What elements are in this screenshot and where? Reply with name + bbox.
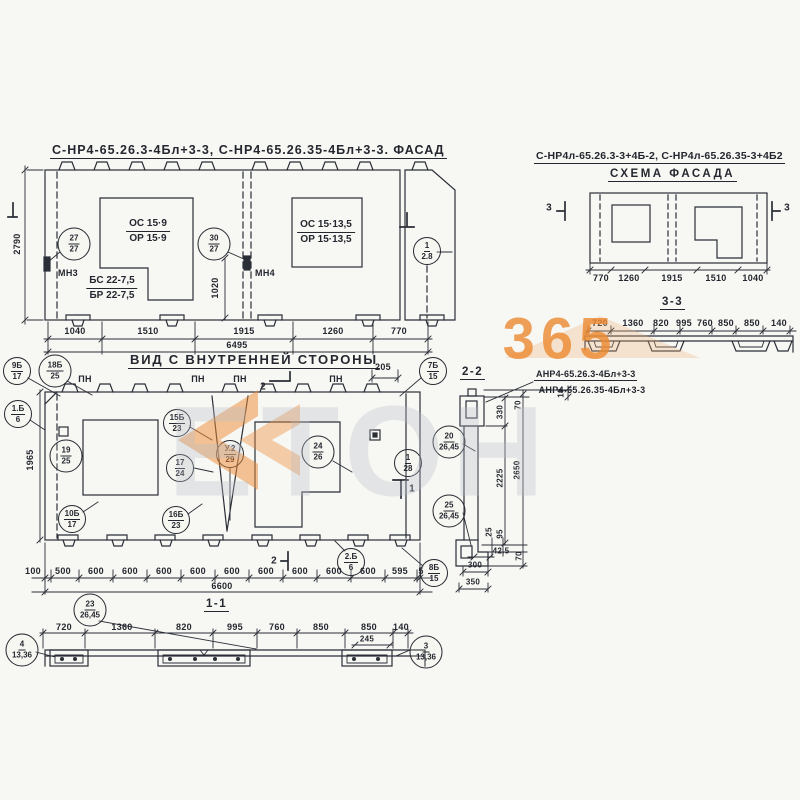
section-mark-label: 2	[260, 382, 266, 393]
dim-label: 600	[224, 566, 240, 576]
dim-label: 760	[697, 318, 713, 328]
facade-title: С-НР4-65.26.3-4Бл+3-3, С-НР4-65.26.35-4Б…	[50, 143, 447, 159]
dim-label: 245	[360, 635, 374, 644]
window-mark-label: ОС 15·13,5ОР 15·13,5	[297, 219, 355, 245]
dim-label: 850	[744, 318, 760, 328]
section33-profile	[585, 336, 793, 352]
detail-marker: 1.Б6	[4, 400, 32, 428]
section22-mark-label: АНР4-65.26.3-4Бл+3-3	[534, 369, 637, 381]
detail-marker: 3027	[198, 228, 231, 261]
dim-label: 1040	[64, 326, 85, 336]
dim-label: 850	[718, 318, 734, 328]
dim-label: 600	[190, 566, 206, 576]
detail-marker: 2727	[58, 228, 91, 261]
detail-marker: 2326,45	[74, 594, 107, 627]
dim-label: 760	[269, 622, 285, 632]
dim-label: 95	[496, 529, 505, 539]
dim-label: 850	[313, 622, 329, 632]
dim-label: 770	[593, 273, 609, 283]
dim-label: 600	[88, 566, 104, 576]
detail-marker: 2026,45	[433, 426, 466, 459]
dim-label: 2650	[513, 461, 522, 480]
detail-marker: 2426	[302, 436, 335, 469]
loop-label-pn: ПН	[78, 374, 92, 384]
dim-label: 330	[496, 405, 505, 419]
detail-marker: 8Б15	[420, 559, 448, 587]
dim-label: 2225	[496, 469, 505, 488]
section11-title: 1-1	[204, 598, 229, 612]
dim-label: 100	[25, 566, 41, 576]
blueprint-sheet: С-НР4-65.26.3-4Бл+3-3, С-НР4-65.26.35-4Б…	[0, 0, 800, 800]
dim-label: 300	[468, 561, 482, 570]
loop-label-pn: ПН	[233, 374, 247, 384]
section22-title: 2-2	[460, 366, 485, 380]
dim-label: 1915	[661, 273, 682, 283]
dim-label-height: 1965	[25, 449, 35, 470]
dim-label: 5	[418, 566, 423, 576]
embed-label-mn4: МН4	[255, 268, 275, 278]
scheme-subtitle: СХЕМА ФАСАДА	[608, 168, 737, 182]
scheme-title: С-НР4л-65.26.3-3+4Б-2, С-НР4л-65.26.35-3…	[534, 150, 785, 164]
dim-label: 600	[292, 566, 308, 576]
detail-marker: 18Б25	[39, 355, 72, 388]
inner-dimensions	[32, 370, 432, 595]
dim-label: 500	[55, 566, 71, 576]
dim-label: 820	[176, 622, 192, 632]
dim-label: 1510	[705, 273, 726, 283]
dim-label: 140	[393, 622, 409, 632]
inner-view-title: ВИД С ВНУТРЕННЕЙ СТОРОНЫ	[128, 352, 380, 369]
detail-marker: 16Б23	[162, 506, 190, 534]
scheme-outline	[590, 193, 767, 263]
dim-label-total: 6495	[226, 340, 247, 350]
dim-label: 1260	[618, 273, 639, 283]
detail-marker: 1925	[50, 440, 83, 473]
dim-label: 600	[258, 566, 274, 576]
dim-label-205: 205	[375, 362, 391, 372]
dim-label: 70	[514, 400, 523, 410]
dim-label: 1915	[233, 326, 254, 336]
detail-marker: 9Б17	[3, 357, 31, 385]
dim-label: 600	[360, 566, 376, 576]
dim-label: 720	[592, 318, 608, 328]
dim-label: 820	[653, 318, 669, 328]
dim-label: 600	[156, 566, 172, 576]
section-mark-label: 1	[409, 484, 415, 495]
dim-label-total: 6600	[211, 581, 232, 591]
drawing-linework	[0, 0, 800, 800]
detail-marker: 7Б15	[419, 357, 447, 385]
loop-label-pn: ПН	[329, 374, 343, 384]
dim-label: 140	[771, 318, 787, 328]
section22-mark-label: АНР4-65.26.35-4Бл+3-3	[539, 385, 646, 395]
dim-label: 10	[557, 388, 566, 398]
detail-marker: 128	[394, 449, 422, 477]
detail-marker: 2526,45	[433, 495, 466, 528]
dim-label: 25	[485, 527, 494, 537]
dim-label-height: 2790	[12, 233, 22, 254]
dim-label: 595	[392, 566, 408, 576]
dim-label: 600	[122, 566, 138, 576]
detail-marker: 12.8	[413, 237, 441, 265]
detail-marker: 413,36	[6, 634, 39, 667]
detail-marker: 1724	[166, 454, 194, 482]
detail-marker: 313,36	[410, 636, 443, 669]
dim-label: 1360	[111, 622, 132, 632]
detail-marker: 10Б17	[58, 505, 86, 533]
detail-marker: У.229	[216, 440, 244, 468]
dim-label: 1260	[322, 326, 343, 336]
window-mark-label: ОС 15·9ОР 15·9	[126, 218, 170, 244]
section-mark-label: 3	[546, 203, 552, 214]
embed-label-mn3: МН3	[58, 268, 78, 278]
beam-mark-label: БС 22-7,5БР 22-7,5	[86, 275, 137, 301]
dim-label: 350	[466, 578, 480, 587]
loop-label-pn: ПН	[191, 374, 205, 384]
section-mark-label: 3	[784, 203, 790, 214]
dim-label: 600	[326, 566, 342, 576]
dim-label: 720	[56, 622, 72, 632]
detail-marker: 15Б23	[163, 409, 191, 437]
dim-label: 42.5	[493, 547, 510, 556]
dim-label-1020: 1020	[210, 277, 220, 298]
dim-label: 995	[227, 622, 243, 632]
facade-panel-outline	[44, 162, 455, 326]
dim-label: 995	[676, 318, 692, 328]
dim-label: 1040	[742, 273, 763, 283]
dim-label: 1360	[622, 318, 643, 328]
dim-label: 850	[361, 622, 377, 632]
dim-label: 70	[515, 551, 524, 561]
dim-label: 770	[391, 326, 407, 336]
dim-label: 1510	[137, 326, 158, 336]
section-mark-label: 2	[271, 556, 277, 567]
section33-title: 3-3	[660, 296, 685, 310]
